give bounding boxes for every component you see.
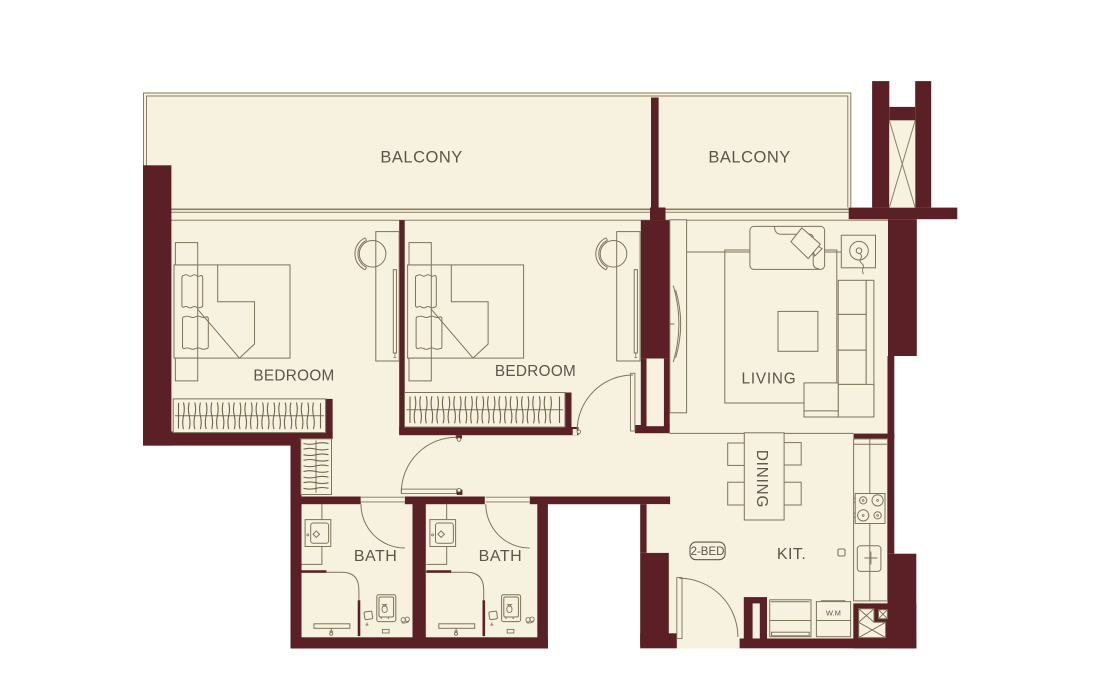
svg-text:KIT.: KIT. [777,546,807,563]
svg-text:BEDROOM: BEDROOM [495,363,576,380]
svg-text:2-BED: 2-BED [691,546,725,558]
svg-text:W.M: W.M [826,609,841,618]
svg-text:DINING: DINING [753,450,770,508]
svg-text:BATH: BATH [354,548,397,565]
svg-text:LIVING: LIVING [742,371,797,388]
svg-text:BEDROOM: BEDROOM [253,367,334,384]
svg-text:BALCONY: BALCONY [380,149,462,167]
svg-text:BATH: BATH [479,548,522,565]
svg-text:BALCONY: BALCONY [708,149,790,167]
